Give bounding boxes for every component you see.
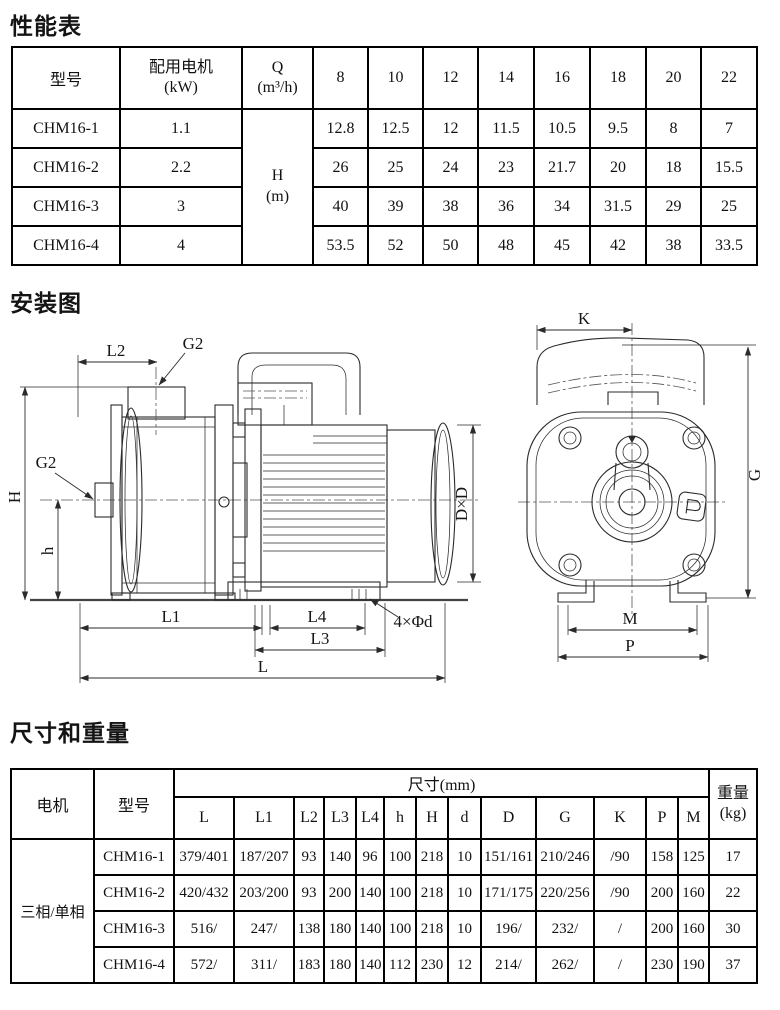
cell-model: CHM16-3	[94, 911, 174, 947]
cell: 38	[646, 226, 701, 265]
cell: 158	[646, 839, 678, 875]
dim-G-label: G	[745, 469, 764, 481]
dims-subcol: G	[536, 797, 594, 839]
cell: 180	[324, 911, 356, 947]
cell: 151/161	[481, 839, 536, 875]
cell: 160	[678, 875, 709, 911]
cell: 36	[478, 187, 534, 226]
cell: 25	[368, 148, 423, 187]
cell: 138	[294, 911, 324, 947]
cell: 20	[590, 148, 646, 187]
dims-subcol: D	[481, 797, 536, 839]
cell: 53.5	[313, 226, 368, 265]
cell-model: CHM16-4	[94, 947, 174, 983]
cell: 25	[701, 187, 757, 226]
dims-subcol: L	[174, 797, 234, 839]
dim-L-label: L	[258, 657, 268, 676]
cell: 140	[356, 875, 384, 911]
cell: 140	[356, 911, 384, 947]
cell: 200	[324, 875, 356, 911]
cell-model: CHM16-4	[12, 226, 120, 265]
cell: 7	[701, 109, 757, 148]
cell: 140	[324, 839, 356, 875]
perf-flow-header: 14	[478, 47, 534, 109]
head-label: H	[245, 166, 310, 187]
cell: 10.5	[534, 109, 590, 148]
cell: 24	[423, 148, 478, 187]
cell: 100	[384, 875, 416, 911]
head-unit: (m)	[245, 187, 310, 208]
cell: /	[594, 947, 646, 983]
cell: 93	[294, 875, 324, 911]
cell: 379/401	[174, 839, 234, 875]
side-view-drawing: H h L2 G2 G2 D×D L1 L4 L3 L 4×Φd	[5, 334, 481, 683]
dim-L4-label: L4	[308, 607, 327, 626]
cell: 21.7	[534, 148, 590, 187]
cell: 203/200	[234, 875, 294, 911]
perf-col-q: Q (m³/h)	[242, 47, 313, 109]
perf-col-q-label: Q	[245, 58, 310, 78]
cell: /	[594, 911, 646, 947]
cell: 516/	[174, 911, 234, 947]
perf-flow-header: 16	[534, 47, 590, 109]
dims-col-weight-unit: (kg)	[712, 804, 754, 824]
cell-power: 4	[120, 226, 242, 265]
cell-weight: 30	[709, 911, 757, 947]
cell: 183	[294, 947, 324, 983]
perf-flow-header: 18	[590, 47, 646, 109]
dims-header-row-1: 电机 型号 尺寸(mm) 重量 (kg)	[11, 769, 757, 797]
cell: 220/256	[536, 875, 594, 911]
cell-power: 3	[120, 187, 242, 226]
cell-model: CHM16-3	[12, 187, 120, 226]
dims-subcol: h	[384, 797, 416, 839]
cell: 171/175	[481, 875, 536, 911]
cell: 232/	[536, 911, 594, 947]
perf-col-motor: 配用电机 (kW)	[120, 47, 242, 109]
cell: 39	[368, 187, 423, 226]
cell-model: CHM16-1	[12, 109, 120, 148]
cell-model: CHM16-2	[12, 148, 120, 187]
perf-col-motor-unit: (kW)	[123, 78, 239, 98]
cell: 12.8	[313, 109, 368, 148]
perf-flow-header: 12	[423, 47, 478, 109]
cell: 140	[356, 947, 384, 983]
cell: 34	[534, 187, 590, 226]
cell: 262/	[536, 947, 594, 983]
dim-L1-label: L1	[162, 607, 181, 626]
cell: 18	[646, 148, 701, 187]
dims-subcol: d	[448, 797, 481, 839]
perf-header-row: 型号 配用电机 (kW) Q (m³/h) 8 10 12 14 16 18 2…	[12, 47, 757, 109]
perf-col-model: 型号	[12, 47, 120, 109]
cell: 218	[416, 911, 448, 947]
table-row: CHM16-4 4 53.5 52 50 48 45 42 38 33.5	[12, 226, 757, 265]
cell: 125	[678, 839, 709, 875]
dims-subcol: L1	[234, 797, 294, 839]
cell: 160	[678, 911, 709, 947]
perf-flow-header: 20	[646, 47, 701, 109]
perf-col-motor-label: 配用电机	[123, 58, 239, 78]
cell: 247/	[234, 911, 294, 947]
installation-drawing: H h L2 G2 G2 D×D L1 L4 L3 L 4×Φd	[0, 305, 780, 700]
cell-power: 1.1	[120, 109, 242, 148]
dims-subcol: L3	[324, 797, 356, 839]
cell: 187/207	[234, 839, 294, 875]
cell: 12	[448, 947, 481, 983]
cell: 196/	[481, 911, 536, 947]
dim-L2-label: L2	[107, 341, 126, 360]
cell: 10	[448, 839, 481, 875]
cell: /90	[594, 839, 646, 875]
terminal-box	[238, 383, 312, 425]
performance-section-title: 性能表	[10, 7, 82, 41]
cell: 190	[678, 947, 709, 983]
table-row: CHM16-2 420/432 203/200 93 200 140 100 2…	[11, 875, 757, 911]
dims-subcol: P	[646, 797, 678, 839]
dims-col-dimensions: 尺寸(mm)	[174, 769, 709, 797]
cell: 311/	[234, 947, 294, 983]
right-foot	[670, 580, 706, 602]
pump-barrel	[122, 417, 215, 593]
cell: 100	[384, 911, 416, 947]
cell: 48	[478, 226, 534, 265]
cell-model: CHM16-1	[94, 839, 174, 875]
dims-col-weight-label: 重量	[712, 784, 754, 804]
cell: 93	[294, 839, 324, 875]
cell: 23	[478, 148, 534, 187]
motor-body	[261, 425, 387, 587]
cell: 42	[590, 226, 646, 265]
dims-subcol: K	[594, 797, 646, 839]
table-row: CHM16-3 3 40 39 38 36 34 31.5 29 25	[12, 187, 757, 226]
cell-weight: 17	[709, 839, 757, 875]
cell: 230	[416, 947, 448, 983]
cell: 210/246	[536, 839, 594, 875]
perf-col-q-unit: (m³/h)	[245, 78, 310, 98]
dim-holes-label: 4×Φd	[393, 612, 433, 631]
head-unit-cell: H (m)	[242, 109, 313, 265]
cell: 96	[356, 839, 384, 875]
table-row: CHM16-2 2.2 26 25 24 23 21.7 20 18 15.5	[12, 148, 757, 187]
cell: 218	[416, 839, 448, 875]
cell: 10	[448, 911, 481, 947]
cell: 26	[313, 148, 368, 187]
cell: 200	[646, 875, 678, 911]
cell: 38	[423, 187, 478, 226]
cell: 11.5	[478, 109, 534, 148]
dims-subcol: L4	[356, 797, 384, 839]
cell: 420/432	[174, 875, 234, 911]
dim-M-label: M	[622, 609, 637, 628]
cell: 8	[646, 109, 701, 148]
motor-face	[527, 412, 715, 586]
cell: 572/	[174, 947, 234, 983]
cell: 15.5	[701, 148, 757, 187]
cell: 214/	[481, 947, 536, 983]
cell: 50	[423, 226, 478, 265]
cell-weight: 22	[709, 875, 757, 911]
dims-col-weight: 重量 (kg)	[709, 769, 757, 839]
handle	[238, 353, 360, 415]
brand-logo	[676, 491, 706, 521]
dim-G2-left-label: G2	[36, 453, 57, 472]
cell: 29	[646, 187, 701, 226]
cell: 112	[384, 947, 416, 983]
cell: 12.5	[368, 109, 423, 148]
cell-motor-type: 三相/单相	[11, 839, 94, 983]
cell: 33.5	[701, 226, 757, 265]
perf-flow-header: 10	[368, 47, 423, 109]
perf-flow-header: 22	[701, 47, 757, 109]
dim-G2-top-label: G2	[183, 334, 204, 353]
cell-power: 2.2	[120, 148, 242, 187]
cell: 10	[448, 875, 481, 911]
cell: 218	[416, 875, 448, 911]
dim-K-label: K	[578, 309, 591, 328]
perf-flow-header: 8	[313, 47, 368, 109]
dims-subcol: H	[416, 797, 448, 839]
terminal-box-end	[537, 338, 704, 405]
dimensions-section-title: 尺寸和重量	[10, 714, 130, 748]
table-row: CHM16-4 572/ 311/ 183 180 140 112 230 12…	[11, 947, 757, 983]
cell: 45	[534, 226, 590, 265]
end-view-drawing: K G M P	[518, 309, 764, 662]
table-row: CHM16-1 1.1 H (m) 12.8 12.5 12 11.5 10.5…	[12, 109, 757, 148]
table-row: CHM16-3 516/ 247/ 138 180 140 100 218 10…	[11, 911, 757, 947]
dims-col-motor: 电机	[11, 769, 94, 839]
fan-cover	[387, 430, 435, 582]
cell: 52	[368, 226, 423, 265]
dims-col-model: 型号	[94, 769, 174, 839]
dim-P-label: P	[625, 636, 634, 655]
cell: 12	[423, 109, 478, 148]
cell: 100	[384, 839, 416, 875]
cell: 230	[646, 947, 678, 983]
cell: 9.5	[590, 109, 646, 148]
table-row: 三相/单相 CHM16-1 379/401 187/207 93 140 96 …	[11, 839, 757, 875]
cell-weight: 37	[709, 947, 757, 983]
cell: 200	[646, 911, 678, 947]
cell: /90	[594, 875, 646, 911]
dims-subcol: L2	[294, 797, 324, 839]
dimensions-weight-table: 电机 型号 尺寸(mm) 重量 (kg) L L1 L2 L3 L4 h H d…	[10, 768, 758, 984]
performance-table: 型号 配用电机 (kW) Q (m³/h) 8 10 12 14 16 18 2…	[11, 46, 758, 266]
cell: 31.5	[590, 187, 646, 226]
dims-subcol: M	[678, 797, 709, 839]
discharge-port	[128, 387, 185, 419]
dim-h-label: h	[38, 546, 57, 555]
cell: 180	[324, 947, 356, 983]
dim-L3-label: L3	[311, 629, 330, 648]
cell: 40	[313, 187, 368, 226]
dim-DxD-label: D×D	[452, 487, 471, 521]
dim-H-label: H	[5, 491, 24, 503]
cell-model: CHM16-2	[94, 875, 174, 911]
plug-circle	[219, 497, 229, 507]
